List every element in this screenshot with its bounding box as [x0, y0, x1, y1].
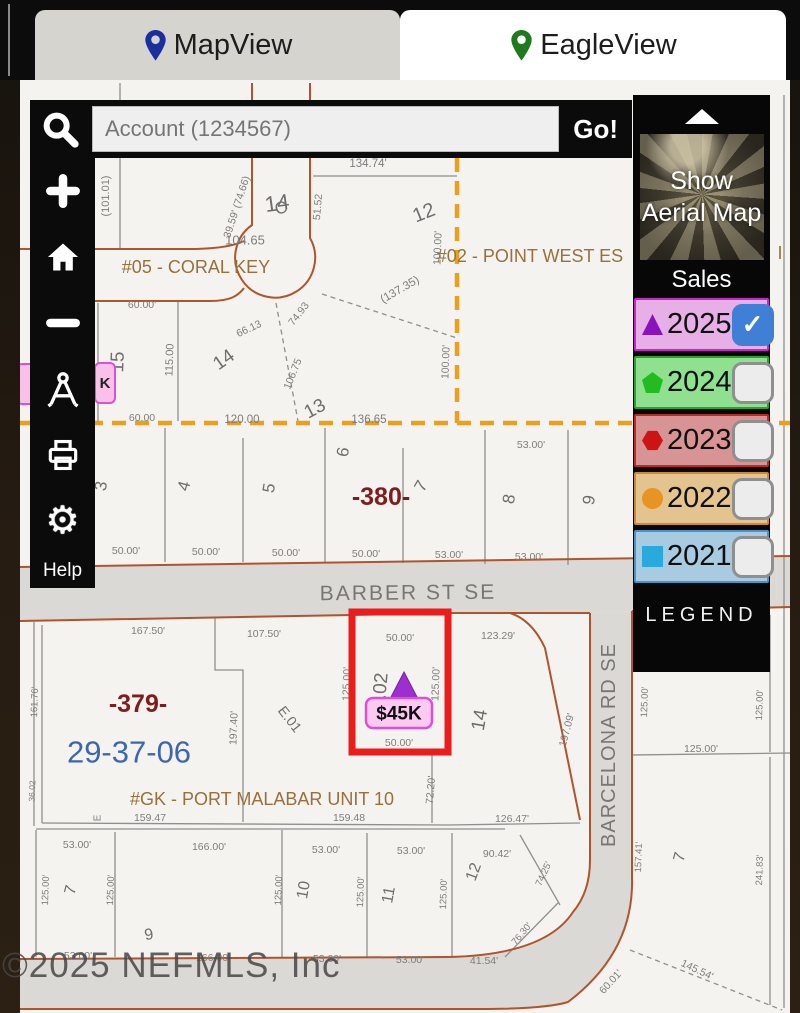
topbar-divider: [8, 4, 10, 76]
map-label: 53.00': [515, 551, 543, 563]
map-label: 36.02: [27, 780, 38, 802]
map-label: 50.00': [272, 547, 300, 559]
year-checkbox-2025[interactable]: ✓: [732, 304, 774, 346]
account-search-input[interactable]: [92, 106, 559, 152]
sales-heading: Sales: [671, 266, 731, 294]
hidden-sale-badge-text: K: [100, 375, 111, 392]
show-aerial-map-label: Show Aerial Map: [640, 134, 764, 260]
map-label: 72.20': [424, 775, 438, 804]
map-label: 51.52: [311, 193, 325, 220]
printer-icon: [44, 436, 82, 474]
hexagon-icon: [642, 430, 663, 451]
legend-year-label: 2025: [667, 308, 732, 341]
map-label: 39.59' (74.66): [221, 174, 252, 239]
map-label: 60.00': [128, 299, 156, 311]
map-label: 53.00': [312, 844, 340, 856]
map-label: 136.65: [351, 414, 386, 426]
map-label: #05 - CORAL KEY: [122, 257, 270, 277]
sale-badge-label: $45K: [376, 704, 422, 725]
minus-icon: [44, 304, 82, 342]
settings-button[interactable]: ⚙: [40, 498, 86, 544]
map-label: 125.00': [273, 874, 285, 905]
map-label: 125.00': [754, 689, 766, 720]
map-label: 125.00': [429, 667, 442, 702]
hidden-sale-badge-right: K: [94, 362, 116, 404]
map-label: 41.54': [470, 955, 498, 967]
map-label: 125.00': [438, 878, 450, 909]
map-label: E: [93, 814, 104, 821]
right-panel: Show Aerial Map Sales 2025✓2024202320222…: [633, 95, 770, 672]
home-icon: [44, 238, 82, 276]
help-link[interactable]: Help: [43, 560, 82, 582]
map-label: 4: [174, 479, 195, 493]
map-label: -380-: [352, 483, 410, 511]
collapse-up-icon[interactable]: [685, 109, 719, 124]
legend-years: 2025✓2024202320222021: [634, 298, 769, 583]
legend-year-label: 2021: [667, 540, 732, 573]
zoom-out-button[interactable]: [40, 300, 86, 346]
map-label: 125.00': [355, 876, 367, 907]
map-label: 241.83': [754, 854, 766, 885]
map-label: 50.00': [192, 546, 220, 558]
map-label: 50.00': [352, 548, 380, 560]
map-label: 13: [301, 395, 330, 423]
tab-eagleview-label: EagleView: [540, 29, 677, 62]
map-label: 125.00': [684, 743, 718, 755]
map-pin-blue-icon: [143, 29, 168, 62]
page: (101.01)14104.6539.59' (74.66)C134.74'51…: [0, 0, 800, 1013]
map-label: 126.47': [495, 813, 529, 825]
zoom-in-button[interactable]: [40, 168, 86, 214]
top-bar: MapView EagleView: [0, 0, 800, 80]
map-label: 14: [209, 345, 239, 375]
home-button[interactable]: [40, 234, 86, 280]
map-label: 9: [579, 494, 599, 507]
map-label: 115.00: [163, 343, 176, 376]
gear-icon: ⚙: [45, 502, 79, 540]
search-icon: [40, 109, 80, 149]
map-label: 8: [499, 493, 519, 506]
map-label: 53.00': [517, 439, 545, 451]
map-label: 125.00': [40, 874, 52, 905]
pentagon-icon: [642, 372, 663, 393]
map-label: #GK - PORT MALABAR UNIT 10: [130, 789, 394, 809]
map-label: BARCELONA RD SE: [598, 643, 620, 847]
map-label: 90.42': [483, 848, 511, 860]
map-label: 10: [294, 880, 314, 901]
legend-year-2025[interactable]: 2025✓: [634, 298, 769, 351]
map-label: 145.54': [679, 957, 715, 982]
map-label: 159.48: [333, 812, 365, 824]
copyright-watermark: ©2025 NEFMLS, Inc: [2, 946, 340, 986]
map-label: 60.01': [597, 967, 625, 996]
map-label: 6: [333, 446, 353, 459]
map-label: 50.00': [385, 737, 413, 749]
triangle-icon: [642, 314, 663, 335]
map-toolbar: ⚙ Help: [30, 158, 95, 588]
map-label: I: [777, 243, 782, 263]
map-label: 166.00': [192, 841, 226, 853]
tab-mapview-label: MapView: [174, 29, 293, 62]
map-label: 7: [62, 883, 81, 896]
map-label: 106.75: [281, 357, 304, 391]
map-pin-green-icon: [509, 29, 534, 62]
legend-year-2022[interactable]: 2022: [634, 472, 769, 525]
legend-button[interactable]: LEGEND: [633, 588, 770, 643]
map-label: 123.29': [481, 630, 515, 642]
map-label: 14: [468, 707, 492, 732]
map-label: E.01: [275, 703, 305, 736]
search-bar: Go!: [30, 100, 632, 158]
map-label: 100.00': [439, 345, 452, 380]
measure-button[interactable]: [40, 366, 86, 412]
show-aerial-map-button[interactable]: Show Aerial Map: [640, 134, 764, 260]
year-checkbox-2022[interactable]: [732, 478, 774, 520]
map-label: 134.74': [349, 158, 386, 170]
map-label: 53.00': [435, 549, 463, 561]
map-label: 12: [463, 861, 485, 884]
map-label: 157.41': [633, 841, 645, 872]
legend-year-2023[interactable]: 2023: [634, 414, 769, 467]
map-label: 12: [410, 199, 439, 228]
map-label: 53.00': [63, 839, 91, 851]
map-label: .02: [369, 672, 392, 700]
square-icon: [642, 546, 663, 567]
legend-year-2024[interactable]: 2024: [634, 356, 769, 409]
legend-year-2021[interactable]: 2021: [634, 530, 769, 583]
map-label: 159.47: [134, 812, 166, 824]
circle-icon: [642, 488, 663, 509]
map-label: (101.01): [100, 176, 112, 217]
plus-icon: [44, 172, 82, 210]
map-label: 9: [143, 926, 155, 944]
print-button[interactable]: [40, 432, 86, 478]
map-label: 29-37-06: [67, 735, 191, 770]
map-label: #02 - POINT WEST ES: [437, 246, 623, 266]
map-label: 7: [410, 477, 431, 495]
map-label: 125.00': [105, 874, 117, 905]
map-label: 66.13: [235, 318, 264, 340]
map-label: 197.40': [227, 711, 240, 746]
map-label: 7: [671, 850, 690, 863]
map-label: 50.00': [386, 632, 414, 644]
map-label: -379-: [109, 690, 167, 718]
legend-year-label: 2023: [667, 424, 732, 457]
year-checkbox-2024[interactable]: [732, 362, 774, 404]
map-label: 161.76': [29, 686, 41, 717]
legend-year-label: 2024: [667, 366, 732, 399]
map-label: 107.50': [247, 628, 281, 640]
map-label: 5: [259, 482, 279, 495]
go-button[interactable]: Go!: [559, 114, 632, 145]
measure-compass-icon: [44, 370, 82, 408]
tab-eagleview[interactable]: EagleView: [400, 10, 786, 80]
sale-triangle-icon: [391, 672, 417, 697]
map-label: 60.00: [129, 412, 155, 424]
map-label: 53.00': [397, 845, 425, 857]
map-label: (137.35): [378, 274, 421, 306]
map-label: 11: [379, 885, 399, 904]
map-label: 74.93: [286, 300, 312, 328]
tab-mapview[interactable]: MapView: [35, 10, 400, 80]
map-label: 50.00': [112, 545, 140, 557]
year-checkbox-2021[interactable]: [732, 536, 774, 578]
legend-year-label: 2022: [667, 482, 732, 515]
map-label: BARBER ST SE: [320, 581, 497, 606]
map-label: 167.50': [131, 625, 165, 637]
map-label: 120.00: [224, 414, 259, 426]
year-checkbox-2023[interactable]: [732, 420, 774, 462]
map-label: 125.00': [639, 686, 651, 717]
map-label: 53.00': [396, 954, 424, 966]
